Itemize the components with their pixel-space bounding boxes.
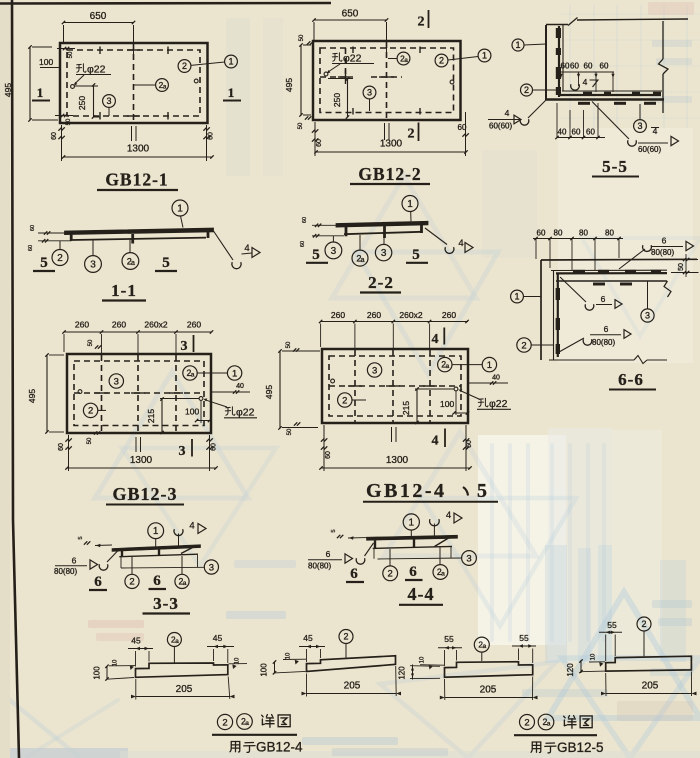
svg-text:40: 40 [558, 128, 567, 137]
svg-text:1: 1 [153, 526, 159, 537]
svg-text:10: 10 [591, 653, 597, 660]
svg-text:100: 100 [39, 57, 53, 67]
svg-text:60(60): 60(60) [638, 145, 661, 154]
svg-text:80(80): 80(80) [308, 562, 331, 571]
svg-text:1: 1 [487, 360, 492, 371]
svg-text:80(80): 80(80) [54, 567, 77, 576]
svg-text:60: 60 [316, 139, 323, 147]
svg-text:5: 5 [78, 536, 84, 539]
svg-text:50: 50 [287, 428, 293, 435]
svg-text:60: 60 [325, 451, 332, 459]
svg-text:1: 1 [177, 204, 183, 215]
svg-text:60: 60 [51, 132, 58, 140]
svg-text:10: 10 [286, 652, 292, 659]
svg-text:55: 55 [607, 620, 617, 630]
svg-text:2: 2 [57, 253, 63, 264]
svg-text:2-2: 2-2 [368, 273, 394, 292]
svg-text:215: 215 [146, 409, 156, 423]
svg-text:50: 50 [286, 341, 292, 348]
svg-text:205: 205 [176, 684, 193, 695]
svg-text:100: 100 [93, 666, 102, 680]
svg-text:50: 50 [299, 34, 305, 41]
svg-text:3: 3 [367, 88, 372, 98]
svg-text:100: 100 [260, 663, 269, 677]
svg-text:60: 60 [584, 62, 593, 71]
svg-text:205: 205 [344, 681, 361, 692]
svg-text:2: 2 [88, 406, 93, 417]
svg-text:a: a [245, 720, 249, 727]
svg-text:2: 2 [439, 56, 444, 66]
svg-text:10: 10 [113, 659, 119, 666]
svg-text:1: 1 [409, 518, 415, 529]
svg-text:60: 60 [208, 132, 215, 140]
svg-text:6: 6 [409, 564, 417, 580]
svg-text:a: a [131, 260, 135, 267]
svg-text:60(60): 60(60) [489, 122, 512, 131]
svg-text:260: 260 [331, 310, 345, 320]
svg-text:4: 4 [432, 434, 439, 449]
svg-text:4: 4 [189, 521, 194, 532]
svg-text:495: 495 [3, 83, 13, 97]
svg-text:4-4: 4-4 [408, 584, 435, 604]
svg-text:2: 2 [418, 15, 425, 30]
svg-text:205: 205 [642, 681, 659, 692]
svg-text:6-6: 6-6 [618, 370, 644, 389]
svg-text:260: 260 [75, 320, 89, 330]
svg-text:3: 3 [331, 246, 337, 257]
svg-text:5: 5 [412, 247, 420, 263]
svg-text:a: a [547, 721, 551, 728]
svg-text:1: 1 [407, 199, 413, 210]
svg-text:3-3: 3-3 [153, 594, 179, 613]
svg-text:260: 260 [442, 310, 456, 320]
svg-text:80: 80 [579, 229, 588, 238]
svg-text:1: 1 [482, 51, 487, 61]
svg-text:60: 60 [537, 229, 546, 238]
svg-text:4: 4 [458, 238, 463, 249]
svg-text:55: 55 [444, 634, 454, 644]
svg-text:1: 1 [228, 85, 235, 100]
svg-text:250: 250 [332, 93, 342, 107]
svg-text:2: 2 [222, 717, 227, 728]
svg-text:215: 215 [401, 401, 411, 415]
svg-text:120: 120 [398, 666, 407, 680]
svg-text:φ22: φ22 [236, 407, 255, 419]
svg-text:50: 50 [298, 122, 304, 129]
svg-text:6: 6 [153, 573, 161, 589]
svg-text:1: 1 [228, 57, 233, 67]
svg-text:2: 2 [641, 619, 646, 629]
svg-text:650: 650 [90, 11, 107, 22]
svg-text:55: 55 [519, 633, 529, 643]
svg-text:6: 6 [326, 549, 331, 559]
svg-text:a: a [446, 363, 450, 370]
svg-text:1: 1 [37, 85, 44, 100]
svg-text:1300: 1300 [127, 144, 150, 155]
svg-text:260x2: 260x2 [144, 320, 167, 330]
svg-text:2: 2 [521, 340, 526, 351]
svg-text:120: 120 [566, 663, 575, 677]
svg-text:3: 3 [181, 339, 188, 354]
svg-text:60: 60 [458, 123, 467, 132]
svg-text:5: 5 [40, 255, 48, 271]
svg-text:GB12-5: GB12-5 [557, 740, 604, 755]
svg-text:60: 60 [586, 128, 595, 137]
svg-text:3: 3 [645, 311, 650, 321]
svg-text:4: 4 [583, 77, 588, 87]
svg-text:50: 50 [68, 51, 74, 58]
svg-text:60: 60 [570, 62, 579, 71]
svg-text:3: 3 [209, 562, 214, 573]
svg-text:2: 2 [342, 395, 347, 406]
svg-text:50: 50 [66, 118, 72, 125]
svg-text:3: 3 [466, 553, 471, 564]
svg-text:1300: 1300 [130, 455, 153, 466]
svg-text:GB12-4: GB12-4 [256, 740, 303, 755]
svg-text:2: 2 [343, 632, 348, 642]
svg-text:60: 60 [466, 440, 473, 448]
svg-text:4: 4 [244, 243, 249, 254]
svg-text:60: 60 [302, 217, 308, 223]
svg-text:60: 60 [28, 245, 34, 251]
svg-text:80: 80 [554, 229, 563, 238]
svg-text:GB12-1: GB12-1 [105, 170, 168, 190]
svg-text:250: 250 [77, 96, 87, 110]
svg-text:205: 205 [480, 685, 497, 696]
svg-text:80(80): 80(80) [651, 248, 674, 257]
svg-text:a: a [183, 580, 187, 587]
svg-text:3: 3 [179, 444, 186, 459]
svg-text:6: 6 [350, 566, 358, 582]
svg-text:φ22: φ22 [489, 398, 508, 410]
svg-text:1300: 1300 [380, 139, 403, 150]
svg-text:a: a [483, 643, 487, 650]
svg-text:3: 3 [381, 248, 387, 259]
svg-text:10: 10 [235, 657, 241, 664]
svg-text:260: 260 [367, 310, 381, 320]
svg-text:6: 6 [604, 324, 609, 334]
svg-text:a: a [191, 372, 195, 379]
svg-text:260x2: 260x2 [399, 310, 422, 320]
svg-text:2: 2 [524, 717, 529, 728]
svg-text:60: 60 [572, 128, 581, 137]
svg-text:495: 495 [27, 389, 37, 403]
svg-text:10: 10 [420, 656, 426, 663]
svg-text:2: 2 [408, 127, 415, 142]
svg-text:5: 5 [312, 247, 320, 263]
svg-text:3: 3 [372, 365, 377, 376]
svg-text:260: 260 [187, 320, 201, 330]
svg-text:80(80): 80(80) [592, 338, 615, 347]
svg-text:60: 60 [58, 443, 65, 451]
svg-text:650: 650 [342, 9, 359, 20]
svg-text:a: a [163, 83, 167, 90]
svg-text:1300: 1300 [386, 455, 409, 466]
svg-text:a: a [404, 57, 408, 64]
svg-text:50: 50 [87, 437, 93, 444]
svg-text:60: 60 [211, 443, 218, 451]
svg-text:1-1: 1-1 [111, 281, 137, 300]
svg-text:495: 495 [284, 78, 294, 92]
svg-text:5: 5 [162, 255, 170, 271]
svg-text:GB12-4: GB12-4 [366, 480, 447, 502]
svg-text:2: 2 [129, 577, 134, 588]
svg-text:45: 45 [213, 633, 223, 643]
svg-text:3: 3 [106, 96, 111, 106]
svg-text:60: 60 [600, 62, 609, 71]
svg-text:60: 60 [300, 241, 306, 247]
svg-text:6: 6 [662, 236, 667, 246]
svg-text:6: 6 [601, 294, 606, 304]
svg-text:50: 50 [88, 339, 94, 346]
svg-text:5: 5 [477, 480, 487, 502]
svg-text:a: a [441, 571, 445, 578]
svg-text:5-5: 5-5 [602, 157, 628, 176]
svg-text:4: 4 [446, 510, 451, 521]
svg-text:100: 100 [440, 399, 454, 409]
svg-text:3: 3 [90, 260, 96, 271]
svg-text:1: 1 [232, 368, 237, 379]
svg-text:2: 2 [182, 61, 187, 71]
svg-text:60: 60 [561, 62, 570, 71]
svg-text:6: 6 [94, 574, 102, 590]
svg-text:GB12-2: GB12-2 [358, 164, 421, 184]
svg-text:6: 6 [72, 556, 77, 566]
svg-text:5: 5 [331, 529, 337, 532]
svg-text:45: 45 [303, 633, 313, 643]
svg-text:495: 495 [264, 385, 274, 399]
svg-text:2: 2 [524, 85, 529, 95]
svg-text:3: 3 [637, 121, 642, 131]
svg-text:4: 4 [432, 332, 439, 347]
svg-text:φ22: φ22 [87, 64, 106, 76]
svg-text:40: 40 [492, 375, 500, 382]
svg-text:60: 60 [30, 225, 36, 231]
svg-text:GB12-3: GB12-3 [112, 484, 177, 504]
svg-text:50: 50 [678, 263, 685, 271]
svg-text:a: a [175, 638, 179, 645]
svg-text:a: a [361, 257, 365, 264]
svg-text:45: 45 [131, 636, 141, 646]
svg-text:260: 260 [112, 320, 126, 330]
svg-text:2: 2 [388, 569, 393, 580]
svg-text:100: 100 [185, 407, 199, 417]
svg-text:40: 40 [236, 383, 244, 390]
svg-text:80: 80 [605, 229, 614, 238]
svg-text:3: 3 [114, 376, 119, 387]
svg-text:1: 1 [514, 292, 519, 302]
svg-text:4: 4 [505, 108, 510, 118]
svg-text:φ22: φ22 [343, 53, 362, 65]
svg-text:1: 1 [515, 40, 520, 50]
